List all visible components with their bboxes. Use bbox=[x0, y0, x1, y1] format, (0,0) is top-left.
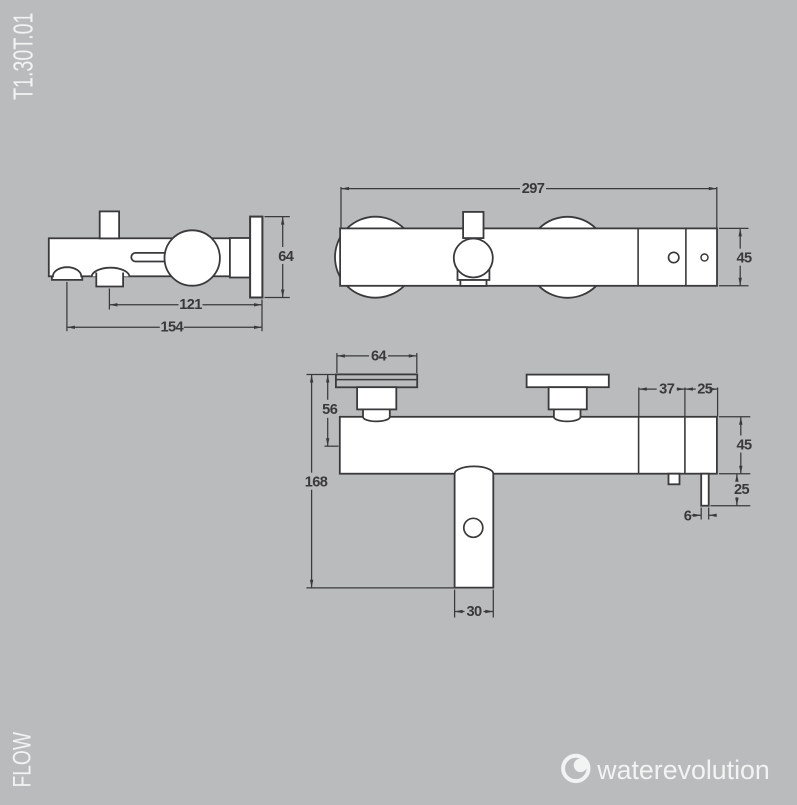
svg-text:121: 121 bbox=[179, 297, 202, 313]
svg-text:6: 6 bbox=[684, 509, 692, 525]
svg-text:37: 37 bbox=[659, 382, 675, 398]
svg-text:25: 25 bbox=[697, 382, 713, 398]
svg-text:45: 45 bbox=[736, 437, 752, 453]
svg-text:25: 25 bbox=[734, 482, 750, 498]
svg-text:30: 30 bbox=[466, 604, 482, 620]
svg-text:297: 297 bbox=[522, 181, 545, 197]
svg-text:56: 56 bbox=[322, 402, 338, 418]
svg-text:45: 45 bbox=[736, 251, 752, 267]
svg-text:154: 154 bbox=[161, 320, 185, 336]
svg-text:FLOW: FLOW bbox=[9, 732, 37, 788]
svg-text:waterevolution: waterevolution bbox=[596, 755, 769, 785]
svg-text:64: 64 bbox=[371, 348, 388, 364]
svg-text:T1.30T.01: T1.30T.01 bbox=[8, 13, 39, 101]
svg-text:64: 64 bbox=[278, 249, 295, 265]
svg-text:168: 168 bbox=[305, 475, 328, 491]
